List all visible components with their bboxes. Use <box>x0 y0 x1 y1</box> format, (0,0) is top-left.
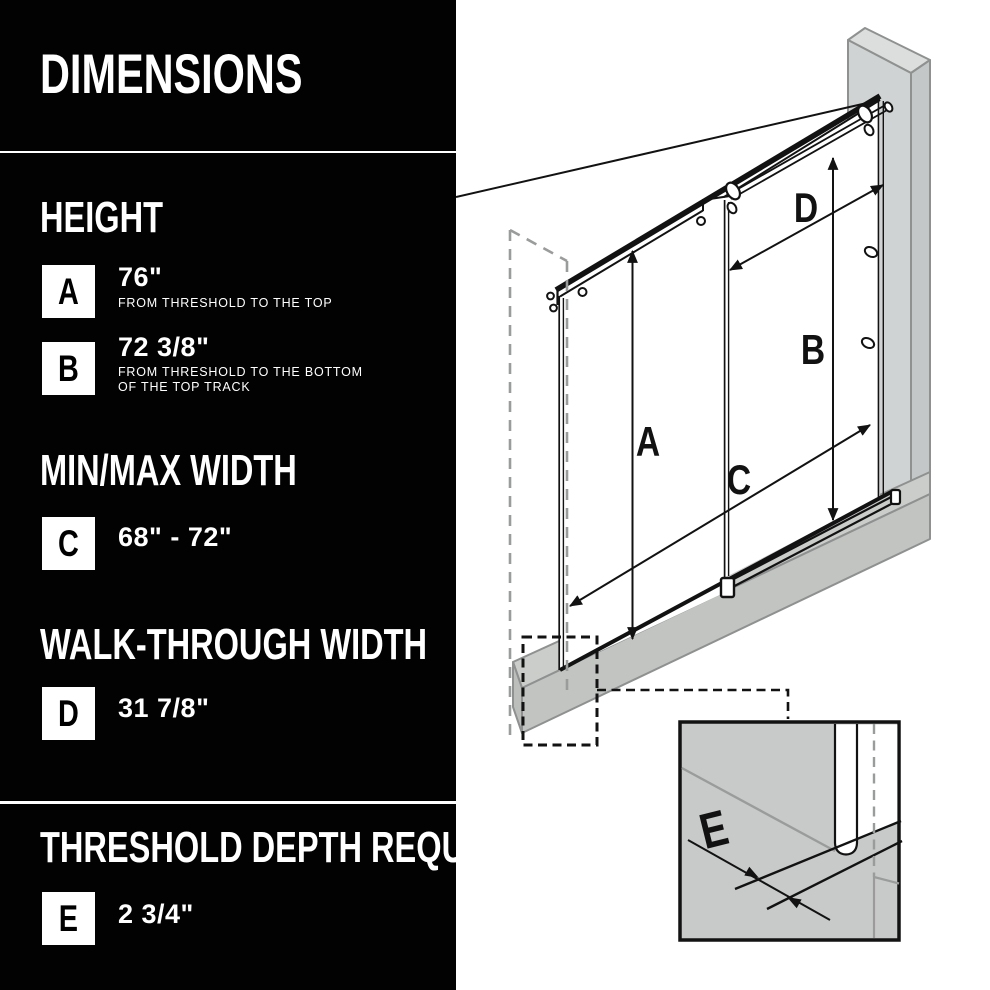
threshold-section-block: THRESHOLD DEPTH REQUIRED E 2 3/4" <box>0 804 456 990</box>
minmax-section-header: MIN/MAX WIDTH <box>40 449 387 493</box>
anchor-screw <box>550 305 557 312</box>
value-e: 2 3/4" <box>118 901 194 928</box>
detail-leader-line <box>597 690 788 719</box>
value-b: 72 3/8" <box>118 334 209 361</box>
glass-hole <box>579 288 587 296</box>
badge-a: A <box>42 265 95 318</box>
rail-end-cap <box>891 490 900 504</box>
dimensions-header-block: DIMENSIONS <box>0 0 456 151</box>
height-section-header: HEIGHT <box>40 196 206 240</box>
label-c: C <box>727 458 751 504</box>
shower-door-diagram: A B C D E <box>456 0 990 990</box>
caption-a: FROM THRESHOLD TO THE TOP <box>118 296 332 311</box>
anchor-screw <box>547 293 554 300</box>
glass-hole <box>697 217 705 225</box>
page-title: DIMENSIONS <box>40 46 395 102</box>
value-c: 68" - 72" <box>118 524 232 551</box>
value-d: 31 7/8" <box>118 695 209 722</box>
badge-b: B <box>42 342 95 395</box>
caption-b: FROM THRESHOLD TO THE BOTTOM OF THE TOP … <box>118 365 363 394</box>
badge-d: D <box>42 687 95 740</box>
label-a: A <box>636 420 660 466</box>
rail-end-cap <box>721 578 734 597</box>
dimensions-main-block: HEIGHT A 76" FROM THRESHOLD TO THE TOP B… <box>0 153 456 801</box>
threshold-detail-inset: E <box>680 722 902 940</box>
badge-e: E <box>42 892 95 945</box>
value-a: 76" <box>118 264 162 291</box>
label-d: D <box>794 186 818 232</box>
label-b: B <box>801 328 825 374</box>
badge-c: C <box>42 517 95 570</box>
